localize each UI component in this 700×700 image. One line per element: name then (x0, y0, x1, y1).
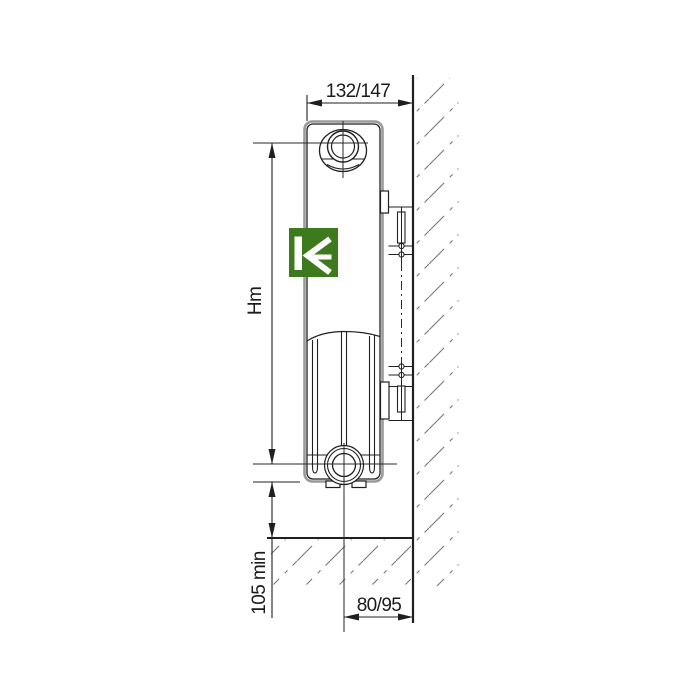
dim-width-arrow-right (398, 100, 413, 107)
dim-label-top-width: 132/147 (326, 81, 391, 102)
dim-height-arrow-bottom (269, 449, 276, 464)
dim-width-arrow-left (307, 100, 322, 107)
dim-clearance-arrow-top (269, 482, 276, 497)
dim-width-top: 132/147 (307, 81, 413, 121)
floor (267, 538, 413, 585)
bracket-bottom-clip (381, 382, 390, 419)
radiator-mounting-diagram: 132/147 Hm 105 min 80/95 (0, 0, 700, 700)
dim-height: Hm (245, 143, 276, 464)
dim-height-arrow-top (269, 143, 276, 158)
dim-label-wall-distance: 80/95 (357, 595, 402, 616)
bracket-top-clip (381, 191, 389, 213)
dim-clearance-arrow-bottom (269, 523, 276, 538)
wall (413, 75, 459, 623)
wall-bracket-top (381, 191, 414, 262)
brand-logo (289, 228, 338, 277)
dim-label-min-clearance: 105 min (249, 551, 270, 614)
floor-hatch (271, 540, 411, 585)
wall-bracket-bottom (381, 362, 414, 421)
dim-wall-distance: 80/95 (344, 595, 413, 621)
dim-label-mounting-height: Hm (245, 287, 266, 315)
diagram-svg: 132/147 Hm 105 min 80/95 (0, 0, 700, 700)
wall-hatch (415, 78, 459, 586)
logo-k-stem (295, 237, 303, 271)
